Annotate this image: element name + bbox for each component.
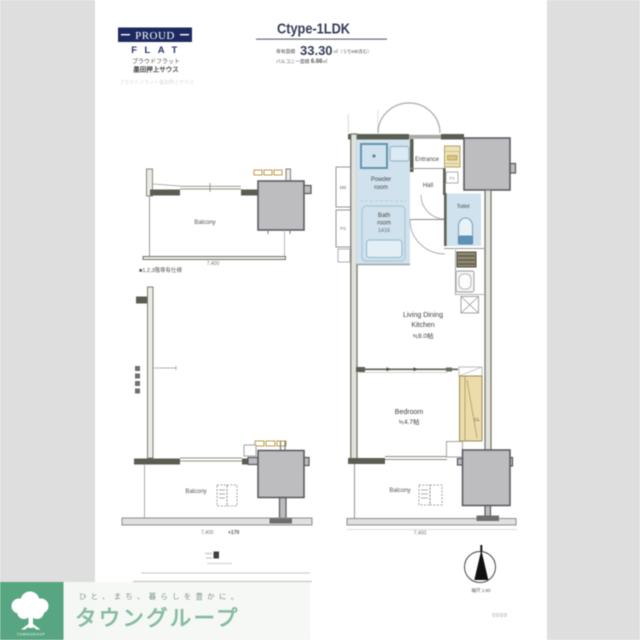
svg-text:FLAT: FLAT — [131, 45, 185, 56]
svg-text:Powder: Powder — [371, 177, 391, 183]
svg-text:room: room — [377, 221, 391, 227]
svg-text:+170: +170 — [228, 530, 239, 536]
svg-text:Balcony: Balcony — [389, 488, 410, 494]
svg-text:㎡（うちMB含む）: ㎡（うちMB含む） — [334, 48, 372, 55]
svg-text:≒4.7帖: ≒4.7帖 — [399, 417, 420, 426]
svg-text:7,400: 7,400 — [207, 261, 220, 267]
svg-text:Balcony: Balcony — [185, 489, 206, 495]
svg-text:PS: PS — [340, 226, 346, 231]
svg-text:room: room — [374, 185, 388, 191]
svg-text:プラウドフラット墨田押上サウス: プラウドフラット墨田押上サウス — [119, 79, 194, 86]
svg-text:Kitchen: Kitchen — [411, 322, 434, 329]
svg-text:PS: PS — [449, 176, 455, 181]
svg-text:Ctype-1LDK: Ctype-1LDK — [277, 22, 350, 38]
svg-text:PROUD: PROUD — [135, 30, 175, 42]
svg-text:CL: CL — [474, 417, 480, 422]
svg-text:■1,2,3階専有仕様: ■1,2,3階専有仕様 — [139, 266, 183, 274]
svg-text:1416: 1416 — [378, 228, 390, 234]
svg-text:墨田押上サウス: 墨田押上サウス — [133, 65, 179, 74]
svg-text:7,400: 7,400 — [201, 530, 214, 536]
svg-text:7,400: 7,400 — [414, 531, 427, 537]
svg-text:Living Dining: Living Dining — [403, 312, 443, 319]
svg-text:ひと、まち、暮らしを豊かに。: ひと、まち、暮らしを豊かに。 — [79, 591, 242, 601]
svg-text:Bedroom: Bedroom — [395, 409, 424, 416]
svg-text:TOWNGROUP: TOWNGROUP — [17, 633, 46, 637]
svg-text:専有面積: 専有面積 — [276, 48, 295, 55]
svg-text:Toilet: Toilet — [457, 204, 470, 210]
svg-text:0000: 0000 — [492, 613, 507, 619]
svg-text:≒8.0帖: ≒8.0帖 — [413, 331, 434, 340]
svg-text:Balcony: Balcony — [194, 220, 215, 226]
svg-text:縮尺 1:80: 縮尺 1:80 — [471, 587, 491, 594]
svg-text:Bath: Bath — [378, 213, 390, 219]
svg-text:33.30: 33.30 — [300, 43, 333, 58]
svg-text:バルコニー面積 6.66㎡: バルコニー面積 6.66㎡ — [276, 58, 328, 65]
svg-text:タウングループ: タウングループ — [75, 606, 240, 631]
svg-text:プラウドフラット: プラウドフラット — [132, 58, 180, 66]
svg-text:Hall: Hall — [423, 183, 433, 189]
svg-text:Entrance: Entrance — [415, 157, 440, 163]
svg-text:MB: MB — [340, 185, 347, 190]
